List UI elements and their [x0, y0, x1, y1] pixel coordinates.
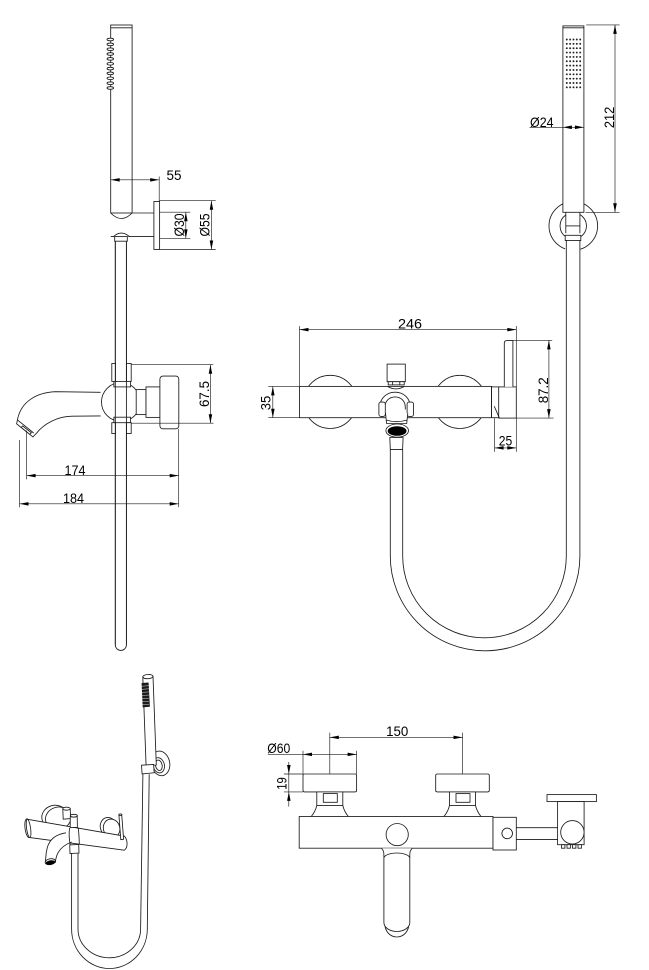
- svg-text:174: 174: [65, 462, 86, 478]
- svg-text:184: 184: [63, 490, 84, 506]
- svg-text:Ø30: Ø30: [171, 213, 187, 236]
- svg-text:87.2: 87.2: [535, 377, 551, 403]
- svg-text:Ø55: Ø55: [197, 213, 213, 236]
- svg-text:246: 246: [398, 316, 422, 332]
- svg-text:Ø24: Ø24: [530, 114, 554, 130]
- svg-text:Ø60: Ø60: [267, 740, 290, 756]
- svg-text:212: 212: [601, 107, 617, 129]
- svg-text:19: 19: [274, 777, 290, 790]
- svg-text:55: 55: [167, 167, 182, 183]
- svg-text:35: 35: [258, 396, 274, 411]
- svg-text:25: 25: [499, 433, 513, 449]
- svg-text:67.5: 67.5: [196, 381, 212, 407]
- svg-text:150: 150: [386, 723, 408, 739]
